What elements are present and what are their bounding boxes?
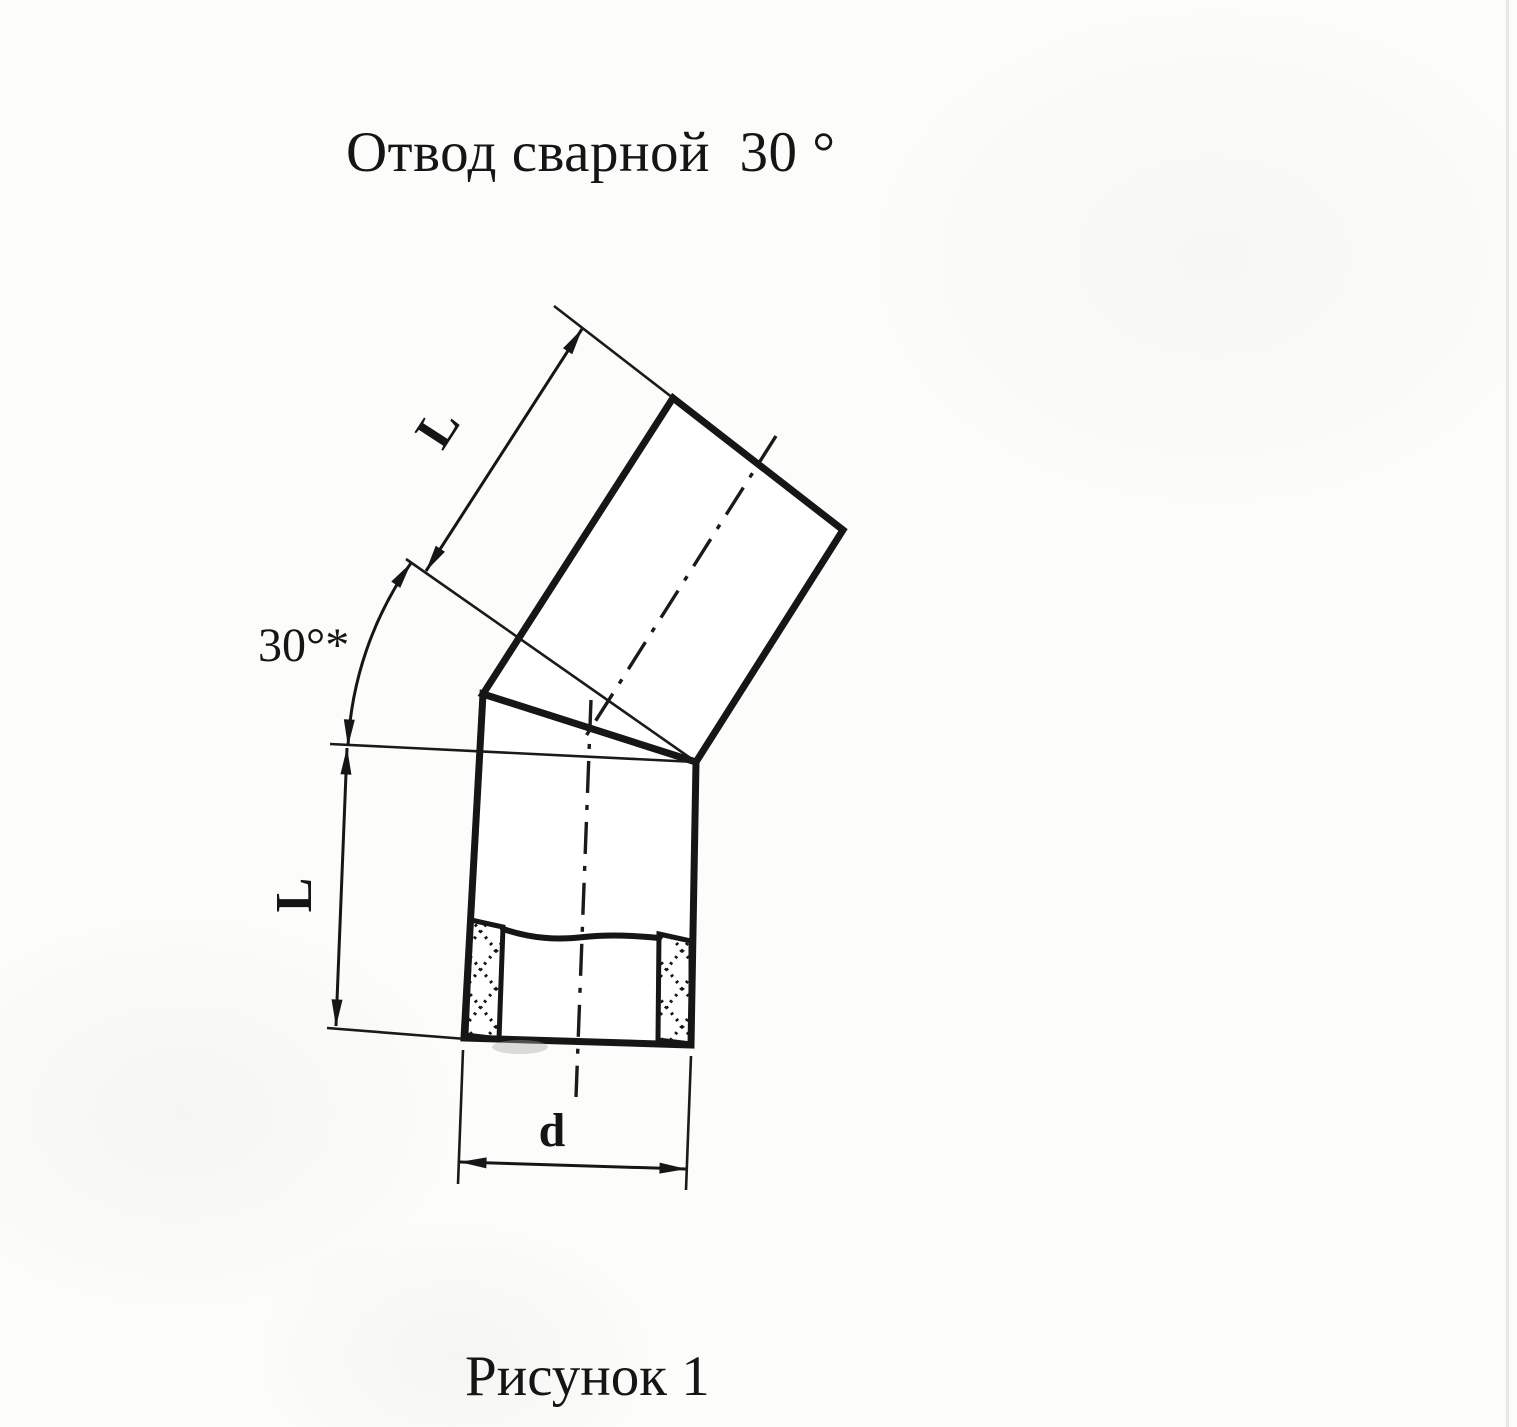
diameter-extension-right bbox=[686, 1056, 691, 1190]
weld-section-right bbox=[658, 934, 691, 1044]
diameter-label: d bbox=[539, 1104, 566, 1157]
angle-label: 30°* bbox=[258, 619, 349, 672]
scanner-edge-artifact bbox=[1506, 0, 1509, 1427]
diameter-extension-left bbox=[458, 1050, 463, 1184]
lower-length-label: L bbox=[266, 878, 323, 913]
upper-length-label: L bbox=[405, 398, 472, 458]
scan-smudge bbox=[492, 1040, 548, 1054]
angle-dimension-arc bbox=[348, 563, 411, 746]
top-face-extension-line bbox=[554, 306, 673, 398]
diameter-dimension bbox=[460, 1162, 686, 1169]
bottom-extension-line bbox=[327, 1028, 466, 1039]
weld-section-left bbox=[466, 920, 503, 1039]
scanned-drawing-page: Отвод сварной 30 ° bbox=[0, 0, 1517, 1427]
upper-pipe-segment bbox=[483, 398, 843, 762]
welded-elbow-diagram: L L 30°* d bbox=[0, 0, 1517, 1427]
lower-length-dimension bbox=[336, 748, 347, 1026]
figure-caption: Рисунок 1 bbox=[465, 1346, 710, 1409]
